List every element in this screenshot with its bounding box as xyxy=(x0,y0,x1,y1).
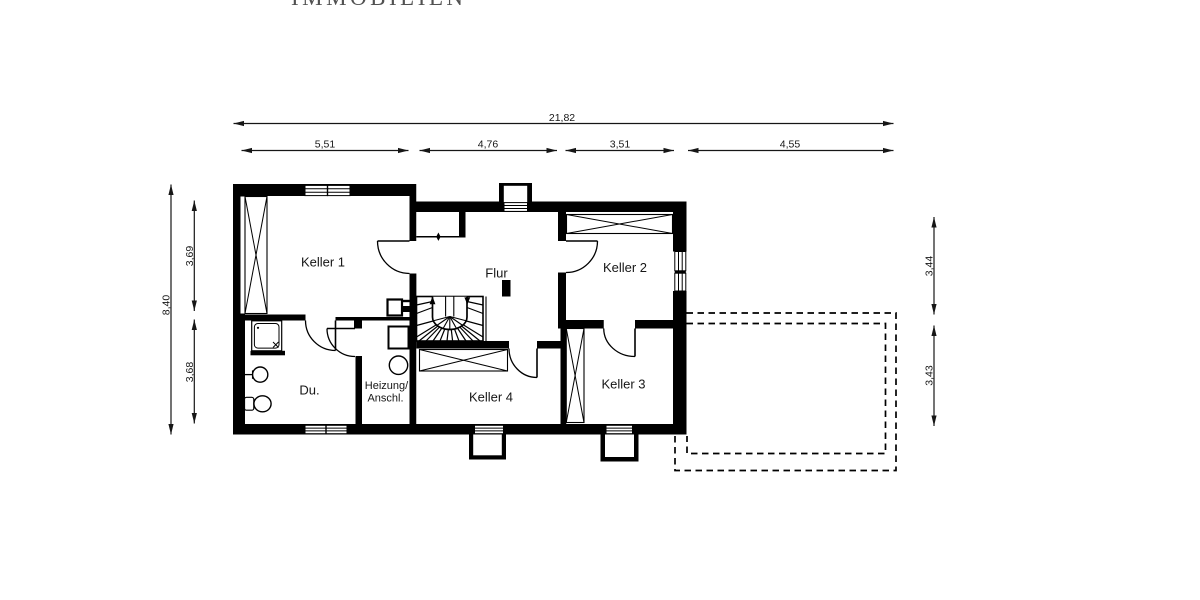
svg-text:3,68: 3,68 xyxy=(184,362,196,383)
svg-text:Heizung/: Heizung/ xyxy=(365,380,409,392)
svg-text:3,69: 3,69 xyxy=(184,246,196,267)
svg-text:3,43: 3,43 xyxy=(924,365,936,386)
svg-text:Keller 2: Keller 2 xyxy=(603,260,647,275)
svg-text:3,44: 3,44 xyxy=(924,256,936,277)
svg-text:Flur: Flur xyxy=(485,266,508,281)
svg-text:Keller 1: Keller 1 xyxy=(301,255,345,270)
svg-text:IMMOBILIEN: IMMOBILIEN xyxy=(291,0,467,10)
svg-text:Keller 3: Keller 3 xyxy=(601,377,645,392)
svg-text:21,82: 21,82 xyxy=(549,112,575,124)
svg-text:Keller 4: Keller 4 xyxy=(469,390,513,405)
svg-text:Anschl.: Anschl. xyxy=(367,393,403,405)
svg-text:8,40: 8,40 xyxy=(161,295,173,316)
svg-text:3,51: 3,51 xyxy=(610,139,631,151)
svg-text:4,76: 4,76 xyxy=(478,139,499,151)
svg-text:5,51: 5,51 xyxy=(315,139,336,151)
svg-text:4,55: 4,55 xyxy=(780,139,801,151)
svg-text:Du.: Du. xyxy=(299,383,319,398)
